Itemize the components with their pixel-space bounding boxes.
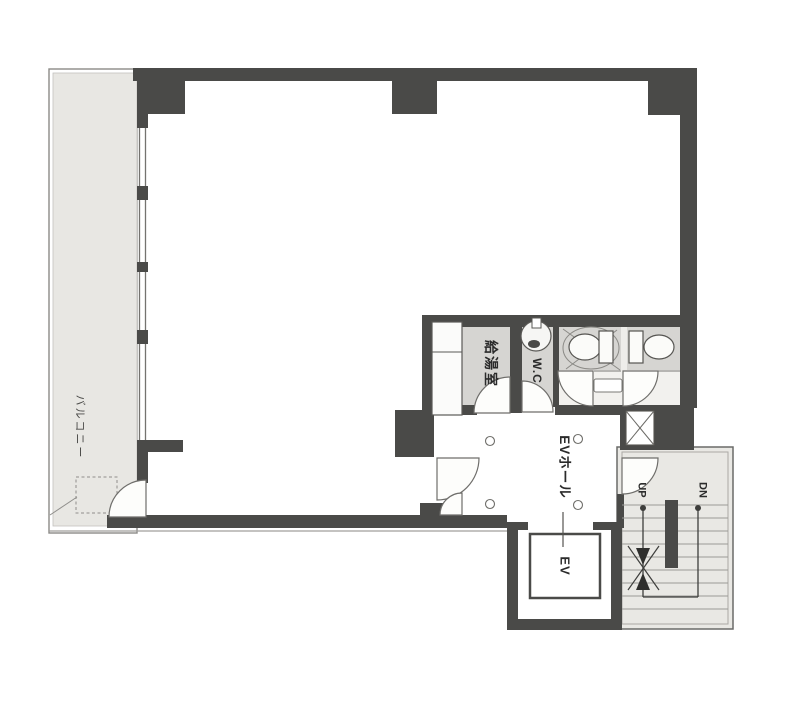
toilet1-bowl-icon xyxy=(569,334,601,360)
elevator-label: EV xyxy=(559,556,572,575)
wall-bottom xyxy=(107,515,507,528)
floor-plan: バルコニー 給湯室 W.C EVホール EV UP DN xyxy=(0,0,787,704)
mullion-4 xyxy=(137,330,148,344)
pillar-ev-hall xyxy=(395,410,434,457)
stall-step-box xyxy=(594,379,622,392)
ev-shaft-wall-bottom xyxy=(507,619,622,630)
hall-marker-circle xyxy=(486,437,495,446)
toilet2-tank-icon xyxy=(629,331,643,363)
stairs-up-label: UP xyxy=(636,482,647,497)
wall-kitchenette-wc xyxy=(510,327,522,413)
sink-drain-icon xyxy=(528,340,540,348)
toilet1-tank-icon xyxy=(599,331,613,363)
pillar-top-left xyxy=(137,81,185,114)
pillar-top-middle xyxy=(392,81,437,114)
doors xyxy=(109,371,658,517)
mullion-2 xyxy=(137,186,148,200)
hall-marker-circle xyxy=(574,435,583,444)
stairs-down-label: DN xyxy=(697,482,708,498)
kitchenette-label: 給湯室 xyxy=(484,340,498,388)
ev-shaft-stub-left xyxy=(507,522,528,530)
stair-center-wall-top xyxy=(665,500,678,568)
balcony-floor xyxy=(53,73,137,526)
wall-right xyxy=(680,68,697,408)
window-wall xyxy=(140,128,146,440)
stair-path-dot-up xyxy=(640,505,646,511)
toilet-label: W.C xyxy=(531,358,543,384)
mullion-3 xyxy=(137,262,148,272)
ev-shaft-wall-right xyxy=(611,522,622,630)
sink-tap-icon xyxy=(532,318,541,328)
toilet2-bowl-icon xyxy=(644,335,674,359)
ev-shaft-wall-left xyxy=(507,522,518,630)
stall-partition xyxy=(621,327,627,371)
hall-marker-circle xyxy=(574,501,583,510)
floor-plan-drawing xyxy=(0,0,787,704)
elevator-hall-label: EVホール xyxy=(557,435,571,499)
wall-left-lower xyxy=(137,440,148,483)
balcony-label: バルコニー xyxy=(74,395,85,460)
wall-top xyxy=(133,68,697,81)
wall-wc-bottom xyxy=(555,405,620,415)
pier-bottom-left xyxy=(148,440,183,452)
wall-sink-stall xyxy=(553,323,559,407)
hall-marker-circle xyxy=(486,500,495,509)
stair-path-dot-down xyxy=(695,505,701,511)
kitchen-counter-icon xyxy=(432,322,462,415)
wall-stair-stub xyxy=(617,494,624,528)
mullion-1 xyxy=(137,114,148,128)
